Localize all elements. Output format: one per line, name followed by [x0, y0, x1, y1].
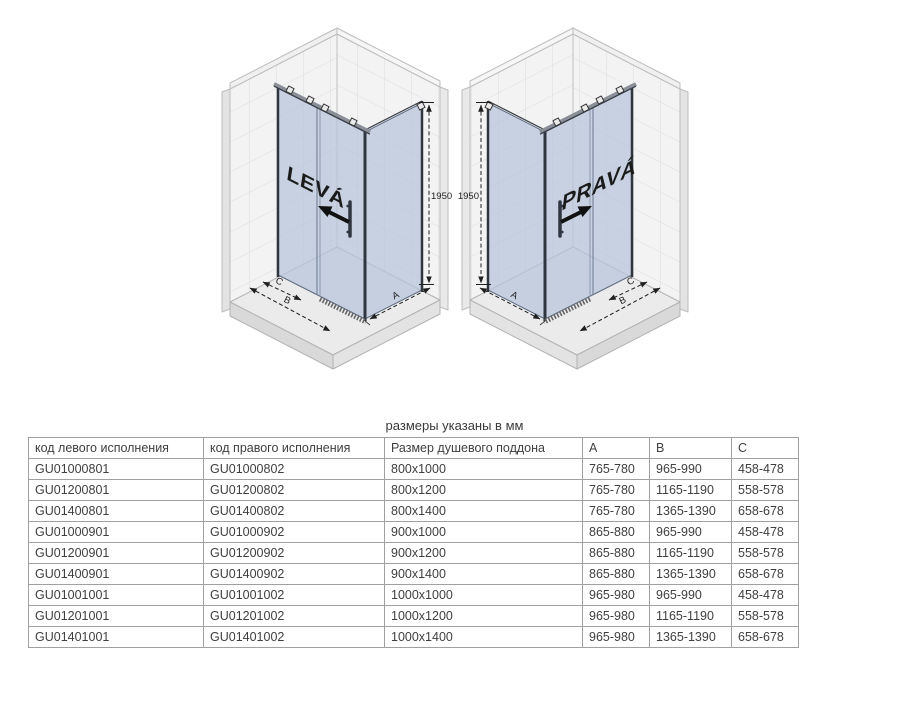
column-header: код левого исполнения [29, 438, 204, 459]
column-header: B [650, 438, 732, 459]
table-cell: GU01200801 [29, 480, 204, 501]
table-cell: GU01201001 [29, 606, 204, 627]
table-cell: 658-678 [732, 501, 799, 522]
table-cell: 865-880 [583, 522, 650, 543]
column-header: A [583, 438, 650, 459]
table-cell: GU01000901 [29, 522, 204, 543]
side-glass-panel [365, 103, 422, 319]
table-cell: 658-678 [732, 627, 799, 648]
table-cell: 965-980 [583, 627, 650, 648]
table-cell: 965-980 [583, 606, 650, 627]
table-cell: GU01401002 [204, 627, 385, 648]
table-cell: 1365-1390 [650, 564, 732, 585]
table-cell: 900x1200 [385, 543, 583, 564]
table-cell: 558-578 [732, 480, 799, 501]
table-cell: GU01401001 [29, 627, 204, 648]
column-header: C [732, 438, 799, 459]
table-cell: 800x1400 [385, 501, 583, 522]
table-cell: 458-478 [732, 459, 799, 480]
table-cell: GU01200902 [204, 543, 385, 564]
table-cell: 965-990 [650, 585, 732, 606]
table-cell: GU01400801 [29, 501, 204, 522]
table-cell: GU01000902 [204, 522, 385, 543]
table-row: GU01200801 GU01200802 800x1200 765-780 1… [29, 480, 799, 501]
table-cell: GU01400902 [204, 564, 385, 585]
units-note: размеры указаны в мм [0, 418, 909, 433]
table-row: GU01001001 GU01001002 1000x1000 965-980 … [29, 585, 799, 606]
table-cell: 658-678 [732, 564, 799, 585]
diagram-pair: LEVÁ C B A 1950 PRAVÁ C B A 1950 [0, 26, 909, 378]
column-header: код правого исполнения [204, 438, 385, 459]
table-cell: GU01400901 [29, 564, 204, 585]
table-cell: GU01001001 [29, 585, 204, 606]
table-cell: 1000x1400 [385, 627, 583, 648]
table-cell: 1365-1390 [650, 627, 732, 648]
table-cell: 765-780 [583, 501, 650, 522]
table-cell: 1165-1190 [650, 480, 732, 501]
column-header: Размер душевого поддона [385, 438, 583, 459]
table-row: GU01000801 GU01000802 800x1000 765-780 9… [29, 459, 799, 480]
table-cell: 458-478 [732, 585, 799, 606]
table-row: GU01400901 GU01400902 900x1400 865-880 1… [29, 564, 799, 585]
size-table: код левого исполнения код правого исполн… [28, 437, 799, 648]
table-cell: 900x1000 [385, 522, 583, 543]
table-cell: GU01000801 [29, 459, 204, 480]
table-row: GU01200901 GU01200902 900x1200 865-880 1… [29, 543, 799, 564]
table-cell: 965-990 [650, 522, 732, 543]
table-cell: 1165-1190 [650, 606, 732, 627]
left-shower-diagram: LEVÁ C B A 1950 [222, 26, 448, 378]
table-cell: 458-478 [732, 522, 799, 543]
table-cell: GU01201002 [204, 606, 385, 627]
table-header-row: код левого исполнения код правого исполн… [29, 438, 799, 459]
table-row: GU01401001 GU01401002 1000x1400 965-980 … [29, 627, 799, 648]
table-cell: 865-880 [583, 564, 650, 585]
table-cell: 865-880 [583, 543, 650, 564]
table-cell: GU01001002 [204, 585, 385, 606]
table-cell: 1365-1390 [650, 501, 732, 522]
table-cell: 765-780 [583, 459, 650, 480]
table-row: GU01400801 GU01400802 800x1400 765-780 1… [29, 501, 799, 522]
table-cell: 1000x1200 [385, 606, 583, 627]
table-row: GU01201001 GU01201002 1000x1200 965-980 … [29, 606, 799, 627]
right-shower-diagram: PRAVÁ C B A 1950 [462, 26, 688, 378]
table-cell: GU01200901 [29, 543, 204, 564]
table-cell: 558-578 [732, 543, 799, 564]
table-cell: 965-990 [650, 459, 732, 480]
table-row: GU01000901 GU01000902 900x1000 865-880 9… [29, 522, 799, 543]
table-cell: 900x1400 [385, 564, 583, 585]
table-cell: 800x1000 [385, 459, 583, 480]
table-cell: 1000x1000 [385, 585, 583, 606]
table-cell: GU01200802 [204, 480, 385, 501]
table-cell: 800x1200 [385, 480, 583, 501]
height-dim-label-right: 1950 [457, 191, 478, 202]
table-cell: 558-578 [732, 606, 799, 627]
table-cell: 1165-1190 [650, 543, 732, 564]
wall-side-edge [222, 89, 230, 312]
table-cell: 765-780 [583, 480, 650, 501]
table-cell: GU01000802 [204, 459, 385, 480]
height-dim-label-left: 1950 [431, 191, 452, 202]
table-cell: 965-980 [583, 585, 650, 606]
table-cell: GU01400802 [204, 501, 385, 522]
